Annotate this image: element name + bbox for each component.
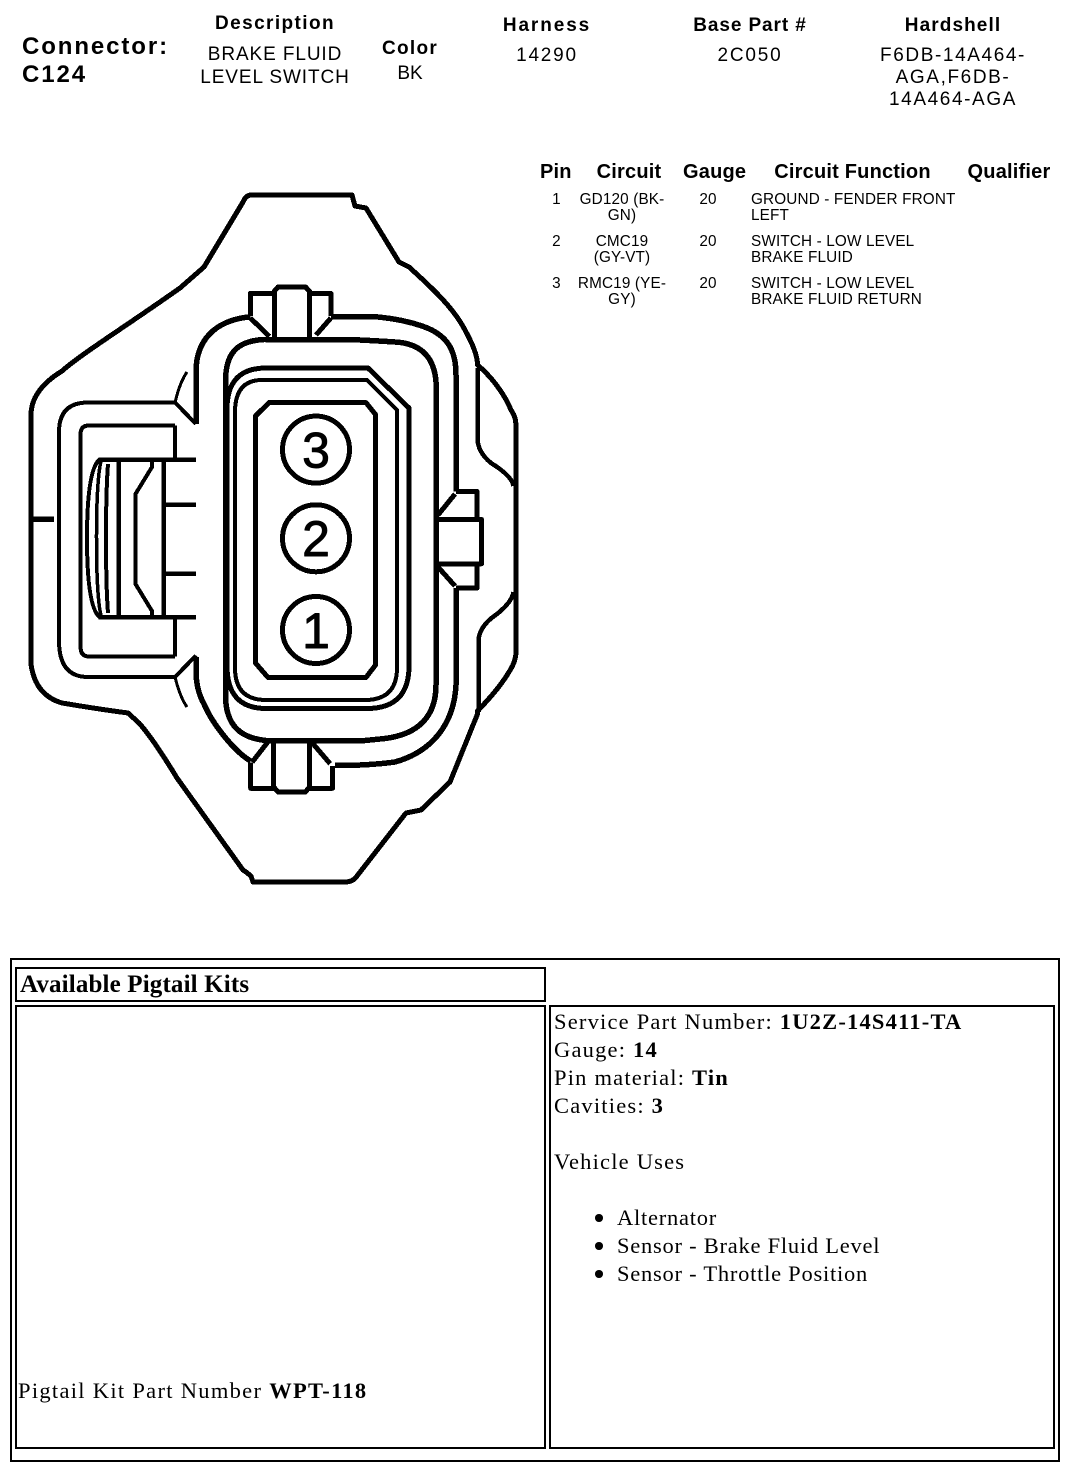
svg-text:3: 3 [302, 423, 330, 479]
svg-text:1: 1 [302, 603, 330, 659]
svg-text:2: 2 [302, 511, 330, 567]
